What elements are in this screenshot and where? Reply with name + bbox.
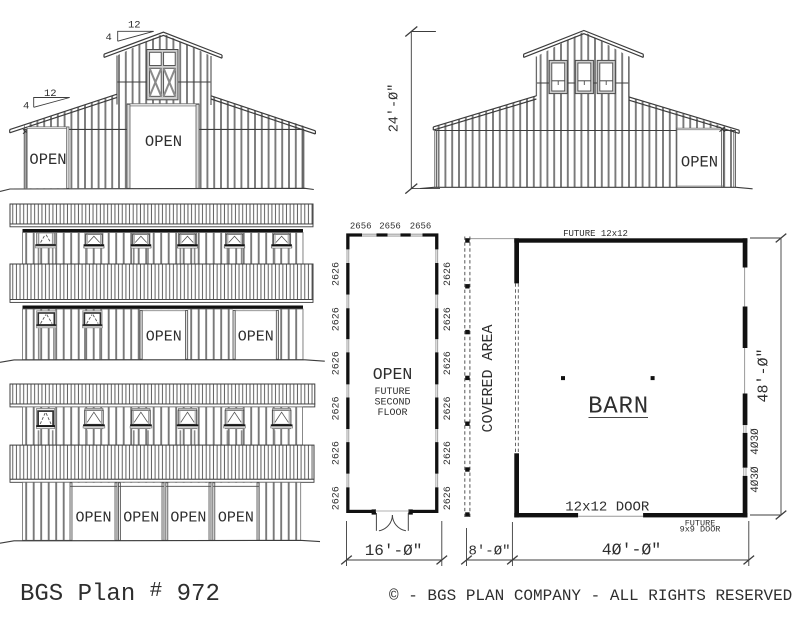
svg-text:2626: 2626 — [443, 486, 454, 510]
svg-text:4: 4 — [23, 101, 29, 113]
svg-text:COVERED AREA: COVERED AREA — [480, 324, 497, 432]
svg-text:BGS Plan # 972: BGS Plan # 972 — [20, 580, 220, 608]
svg-text:2626: 2626 — [443, 307, 454, 331]
svg-text:9x9 DOOR: 9x9 DOOR — [680, 525, 721, 535]
svg-text:OPEN: OPEN — [123, 510, 159, 527]
svg-text:OPEN: OPEN — [218, 510, 254, 527]
svg-text:4: 4 — [106, 32, 112, 44]
svg-text:4Ø3Ø: 4Ø3Ø — [750, 428, 762, 455]
svg-text:OPEN: OPEN — [238, 329, 274, 346]
svg-text:2626: 2626 — [443, 262, 454, 286]
svg-text:16'-Ø": 16'-Ø" — [365, 542, 423, 560]
svg-text:2626: 2626 — [332, 307, 343, 331]
svg-text:OPEN: OPEN — [373, 365, 413, 384]
svg-text:2626: 2626 — [332, 262, 343, 286]
svg-text:BARN: BARN — [588, 394, 649, 421]
svg-text:SECOND: SECOND — [374, 398, 410, 409]
svg-text:OPEN: OPEN — [145, 133, 182, 151]
svg-text:2656: 2656 — [379, 221, 401, 231]
svg-text:24'-Ø": 24'-Ø" — [388, 84, 403, 133]
svg-text:4Ø3Ø: 4Ø3Ø — [750, 466, 762, 493]
svg-text:12x12 DOOR: 12x12 DOOR — [565, 499, 650, 515]
svg-text:2626: 2626 — [332, 486, 343, 510]
svg-text:4Ø'-Ø": 4Ø'-Ø" — [602, 541, 661, 560]
svg-text:OPEN: OPEN — [681, 154, 718, 172]
svg-text:2656: 2656 — [350, 221, 372, 231]
svg-text:OPEN: OPEN — [75, 510, 111, 527]
svg-text:2656: 2656 — [410, 221, 432, 231]
svg-text:FLOOR: FLOOR — [377, 408, 407, 419]
svg-text:OPEN: OPEN — [146, 329, 182, 346]
svg-text:8'-Ø": 8'-Ø" — [468, 544, 510, 560]
svg-text:OPEN: OPEN — [170, 510, 206, 527]
svg-text:2626: 2626 — [332, 441, 343, 465]
svg-text:© - BGS PLAN COMPANY - ALL RIG: © - BGS PLAN COMPANY - ALL RIGHTS RESERV… — [389, 587, 792, 605]
svg-text:12: 12 — [44, 88, 57, 100]
svg-text:FUTURE: FUTURE — [374, 387, 410, 398]
svg-text:FUTURE 12x12: FUTURE 12x12 — [563, 229, 628, 239]
svg-text:2626: 2626 — [332, 351, 343, 375]
svg-text:12: 12 — [128, 20, 141, 32]
svg-text:2626: 2626 — [332, 396, 343, 420]
svg-text:48'-Ø": 48'-Ø" — [756, 348, 773, 402]
svg-text:2626: 2626 — [443, 396, 454, 420]
svg-text:2626: 2626 — [443, 351, 454, 375]
svg-text:OPEN: OPEN — [29, 151, 66, 169]
svg-text:2626: 2626 — [443, 441, 454, 465]
